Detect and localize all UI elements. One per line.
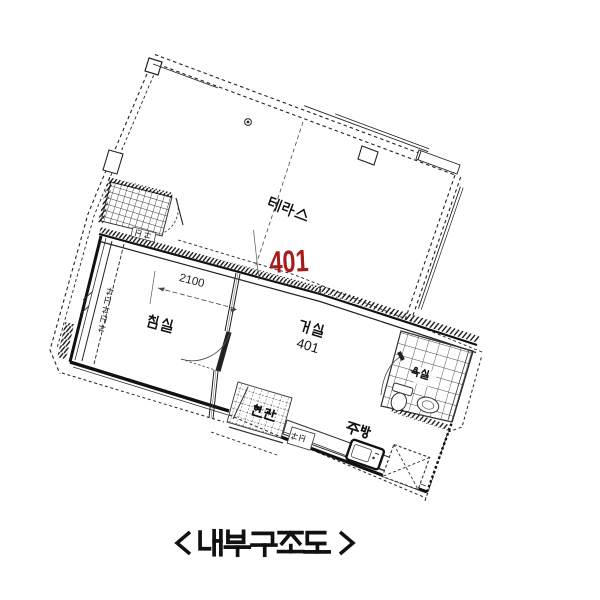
svg-text:401: 401: [269, 243, 310, 280]
